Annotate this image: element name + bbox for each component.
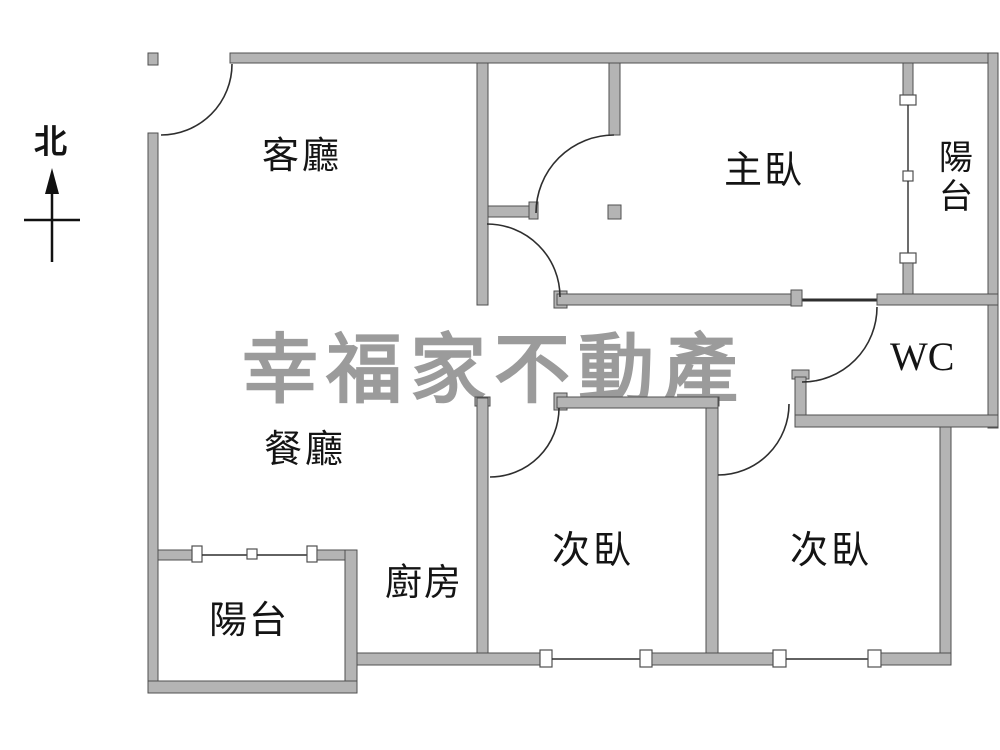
right-bedroom-door-arc [718,404,789,475]
wall-balcony-right [345,550,357,693]
floor-plan-drawing [0,0,1000,750]
wc-door-arc [802,307,877,382]
room-label-bedroom-right: 次臥 [790,531,872,573]
room-label-wc: WC [890,335,954,379]
hall-door-arc [487,224,560,297]
wall-top [230,53,998,63]
wall-bottom-right [881,653,951,665]
wall-balcony-partition-top [903,63,913,95]
room-label-balcony-bottom: 陽台 [209,601,289,643]
wall-master-bottom-right [877,294,998,305]
north-arrow-head [45,168,59,194]
wall-bedroom-divider [706,400,718,665]
room-label-dining: 餐廳 [264,430,346,472]
wall-wc-left [795,377,806,417]
room-label-bedroom-left: 次臥 [552,531,634,573]
room-label-balcony-top: 陽台 [933,139,970,217]
wall-wc-doorstop [791,290,802,306]
room-label-kitchen: 廚房 [385,564,463,605]
wall-bottom-middle [652,653,773,665]
window-cap [307,546,317,562]
window-cap [192,546,202,562]
wall-left [148,133,158,693]
wall-kitchen-divider [477,398,488,665]
wall-balcony-partition-bottom [903,263,913,294]
window-cap [540,650,552,667]
entry-door-arc [161,64,232,135]
window-cap [868,650,881,667]
north-label: 北 [34,124,67,160]
window-cap [640,650,652,667]
wall-closet-upper [609,63,620,135]
wall-closet-stub [608,205,621,219]
window-cap [903,171,913,181]
wall-entry-stub [148,53,158,65]
window-cap [247,549,257,559]
wall-balcony-bottom [148,681,357,693]
wall-living-hall [477,63,488,305]
wall-right [988,53,998,428]
closet-door-arc [536,135,614,213]
wall-master-bottom-left [557,294,802,305]
wall-balcony-top-left [158,550,192,560]
room-label-master-bedroom: 主臥 [724,151,804,193]
left-bedroom-door-arc [490,408,559,477]
window-cap [773,650,786,667]
wall-bedroom-left-top [557,397,718,408]
wall-wc-bottom [795,415,998,427]
room-label-living: 客廳 [262,137,342,178]
window-cap [900,253,916,263]
floor-plan: 幸福家不動產 [0,0,1000,750]
window-cap [900,95,916,105]
wall-bedroom-right [940,427,951,665]
wall-bottom-kitchen [357,653,540,665]
